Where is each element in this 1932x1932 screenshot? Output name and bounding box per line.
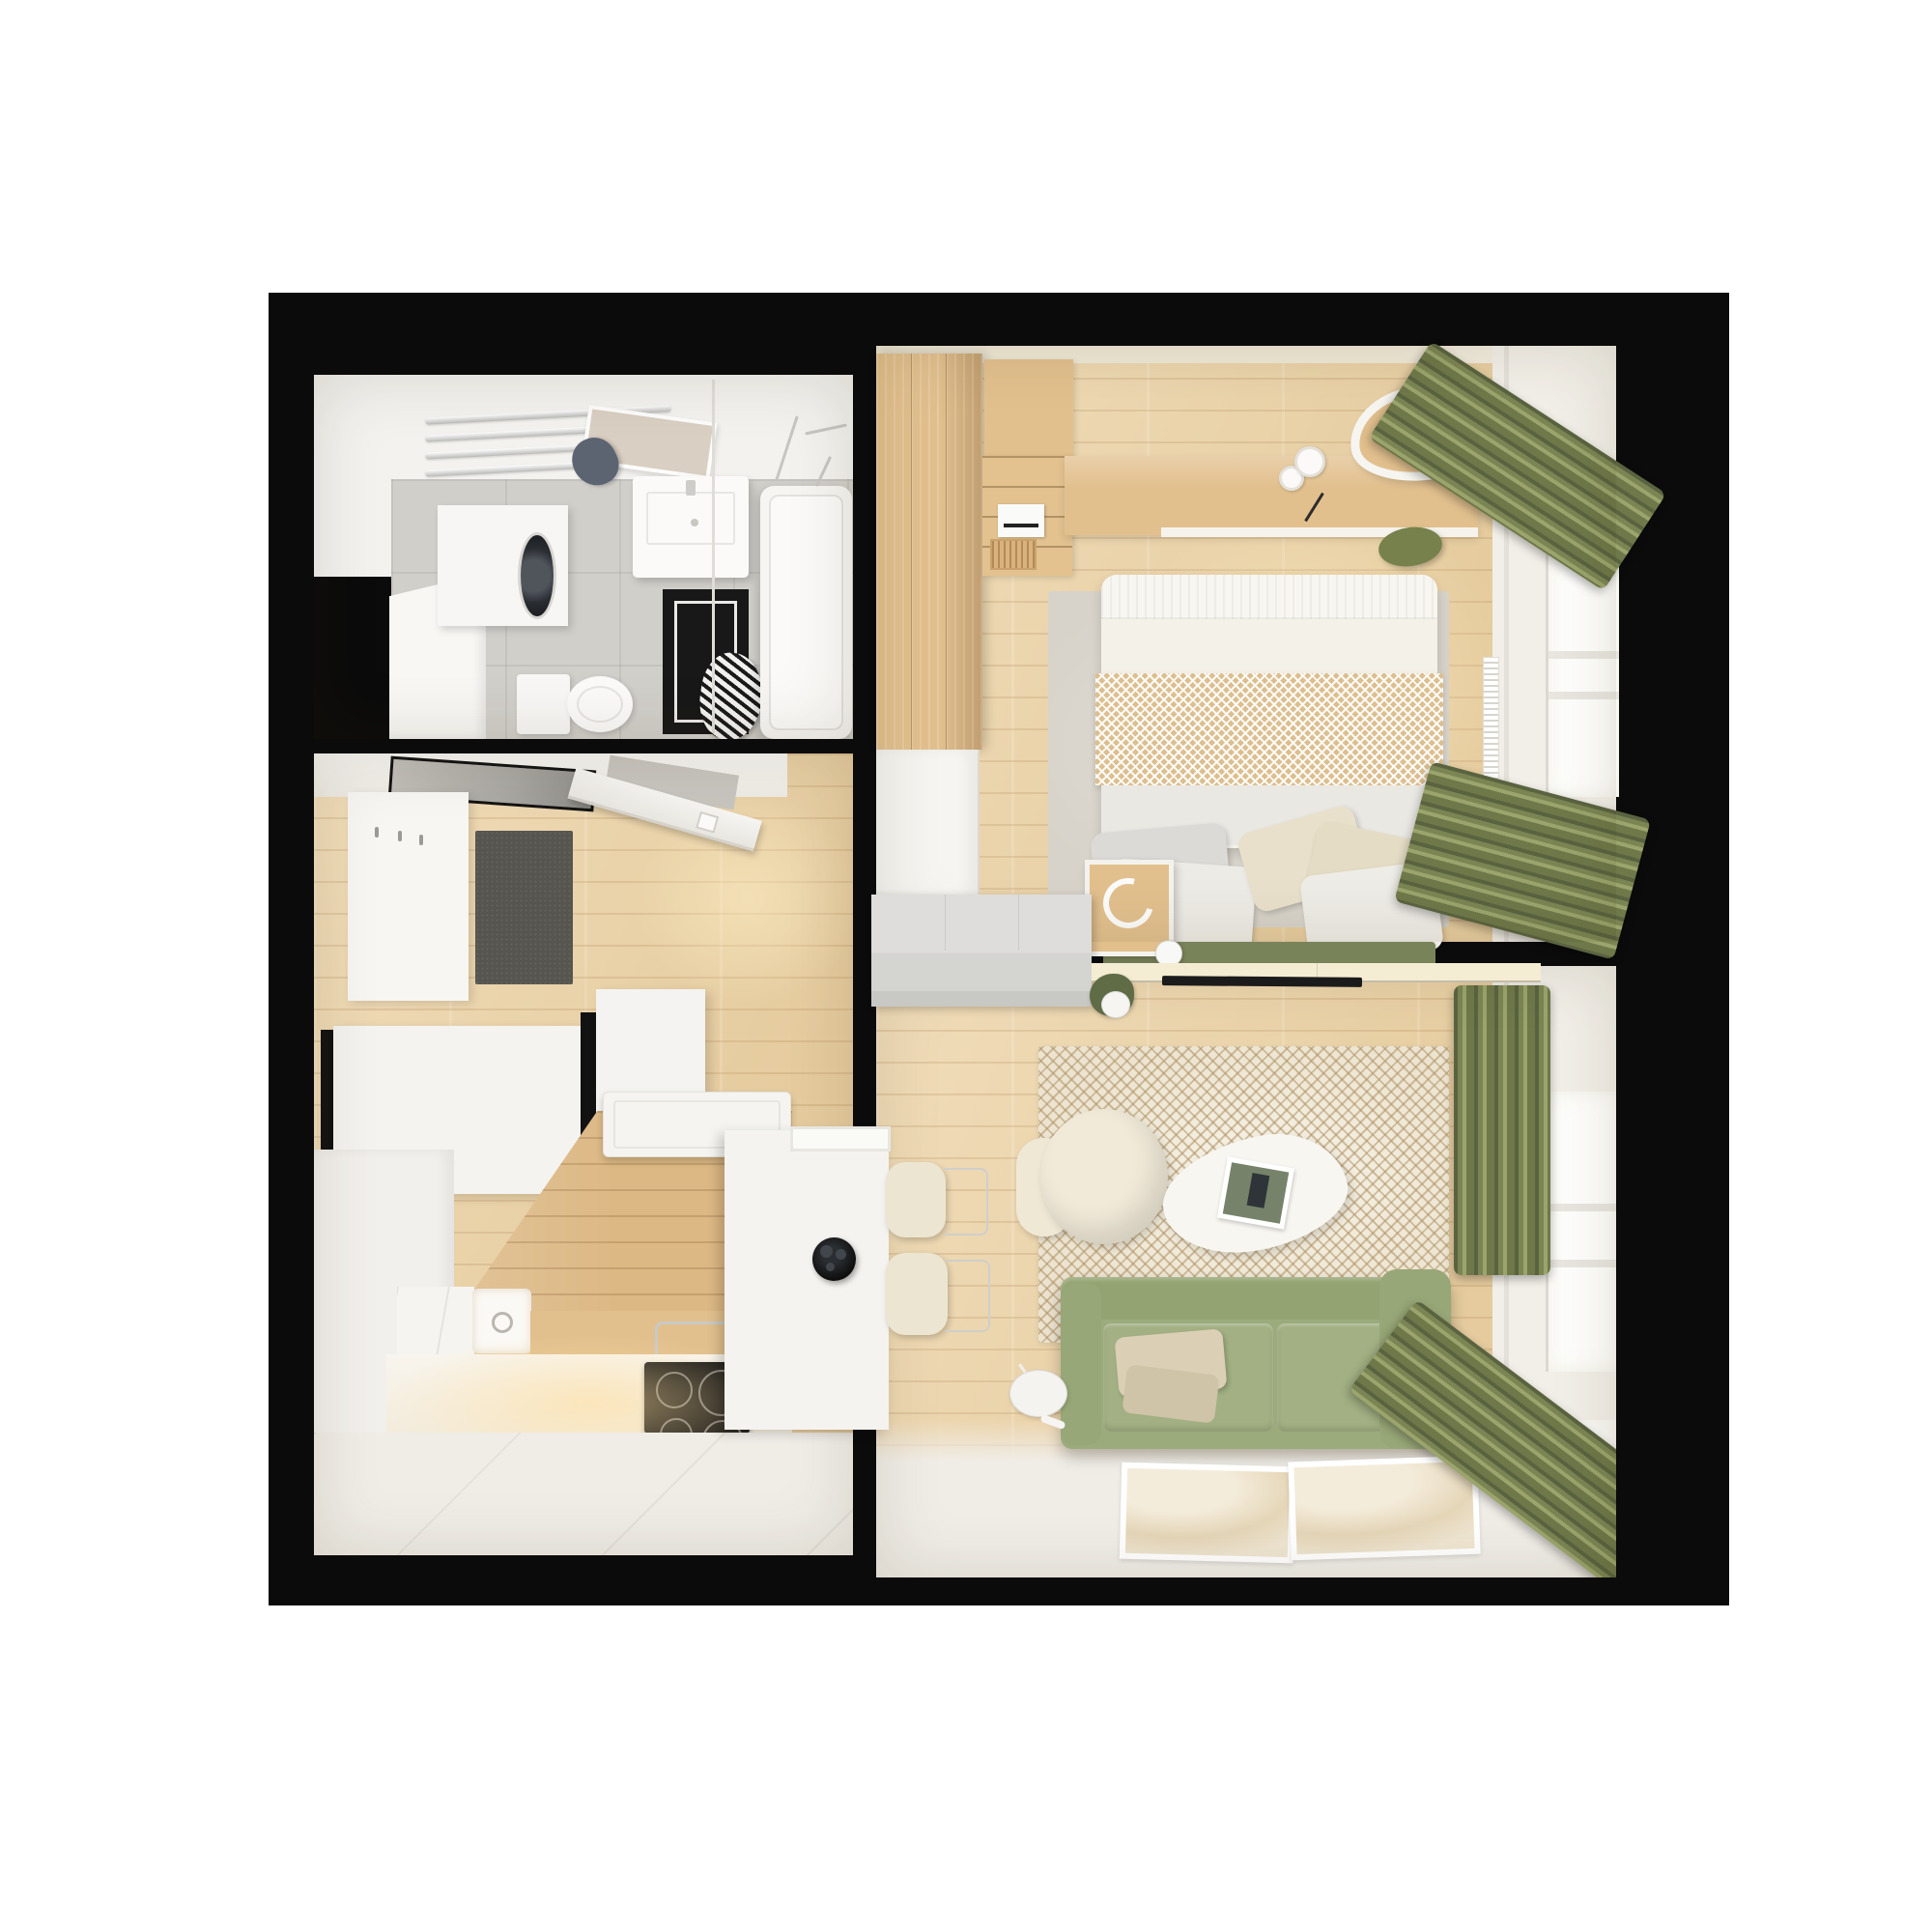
washer-door (518, 532, 556, 619)
bar-stool-1 (886, 1162, 946, 1237)
wood-wardrobe (876, 354, 982, 750)
green-curtain (1454, 985, 1550, 1275)
kitchen-island-column (724, 1130, 889, 1430)
magazine (1217, 1156, 1294, 1229)
bathroom-wall-notch (314, 577, 391, 739)
fruit-bowl (812, 1237, 856, 1281)
toilet-bowl (567, 676, 633, 732)
tv (1162, 976, 1362, 987)
room-bathroom (314, 375, 853, 739)
wicker-basket (990, 539, 1037, 570)
white-tile-floor (314, 1433, 853, 1555)
floor-poster-2 (1288, 1456, 1480, 1561)
floor-lamp-base (1009, 1370, 1067, 1417)
toilet-cistern (517, 674, 570, 734)
apartment-render (0, 0, 1932, 1932)
corner-cabinet (984, 359, 1073, 456)
potted-plant-pot (1101, 991, 1130, 1018)
cream-armchair (1040, 1109, 1168, 1244)
shower-curtain-rod (712, 380, 715, 733)
washing-machine-cabinet (438, 505, 568, 626)
living-window-upper (1546, 1092, 1616, 1372)
room-bedroom (876, 346, 1616, 942)
bar-stool-2 (886, 1253, 948, 1335)
island-countertop (790, 1126, 891, 1151)
printer (998, 504, 1044, 537)
cup (1294, 446, 1325, 477)
headphones (1094, 868, 1162, 937)
dark-doormat (475, 831, 573, 984)
coat-panel (348, 792, 469, 1001)
duvet-fold (1101, 575, 1437, 619)
door-handle (696, 811, 719, 834)
gray-dresser (871, 895, 1092, 1007)
bedroom-white-door (876, 750, 980, 896)
sink-vanity (633, 476, 749, 578)
bathtub (760, 486, 852, 739)
nightstand (1085, 860, 1174, 956)
shower-fittings (776, 409, 853, 496)
floor-poster-1 (1120, 1463, 1296, 1564)
herringbone-blanket (1095, 673, 1443, 785)
sofa-armrest-left (1061, 1283, 1101, 1445)
sink-drain (492, 1312, 513, 1333)
